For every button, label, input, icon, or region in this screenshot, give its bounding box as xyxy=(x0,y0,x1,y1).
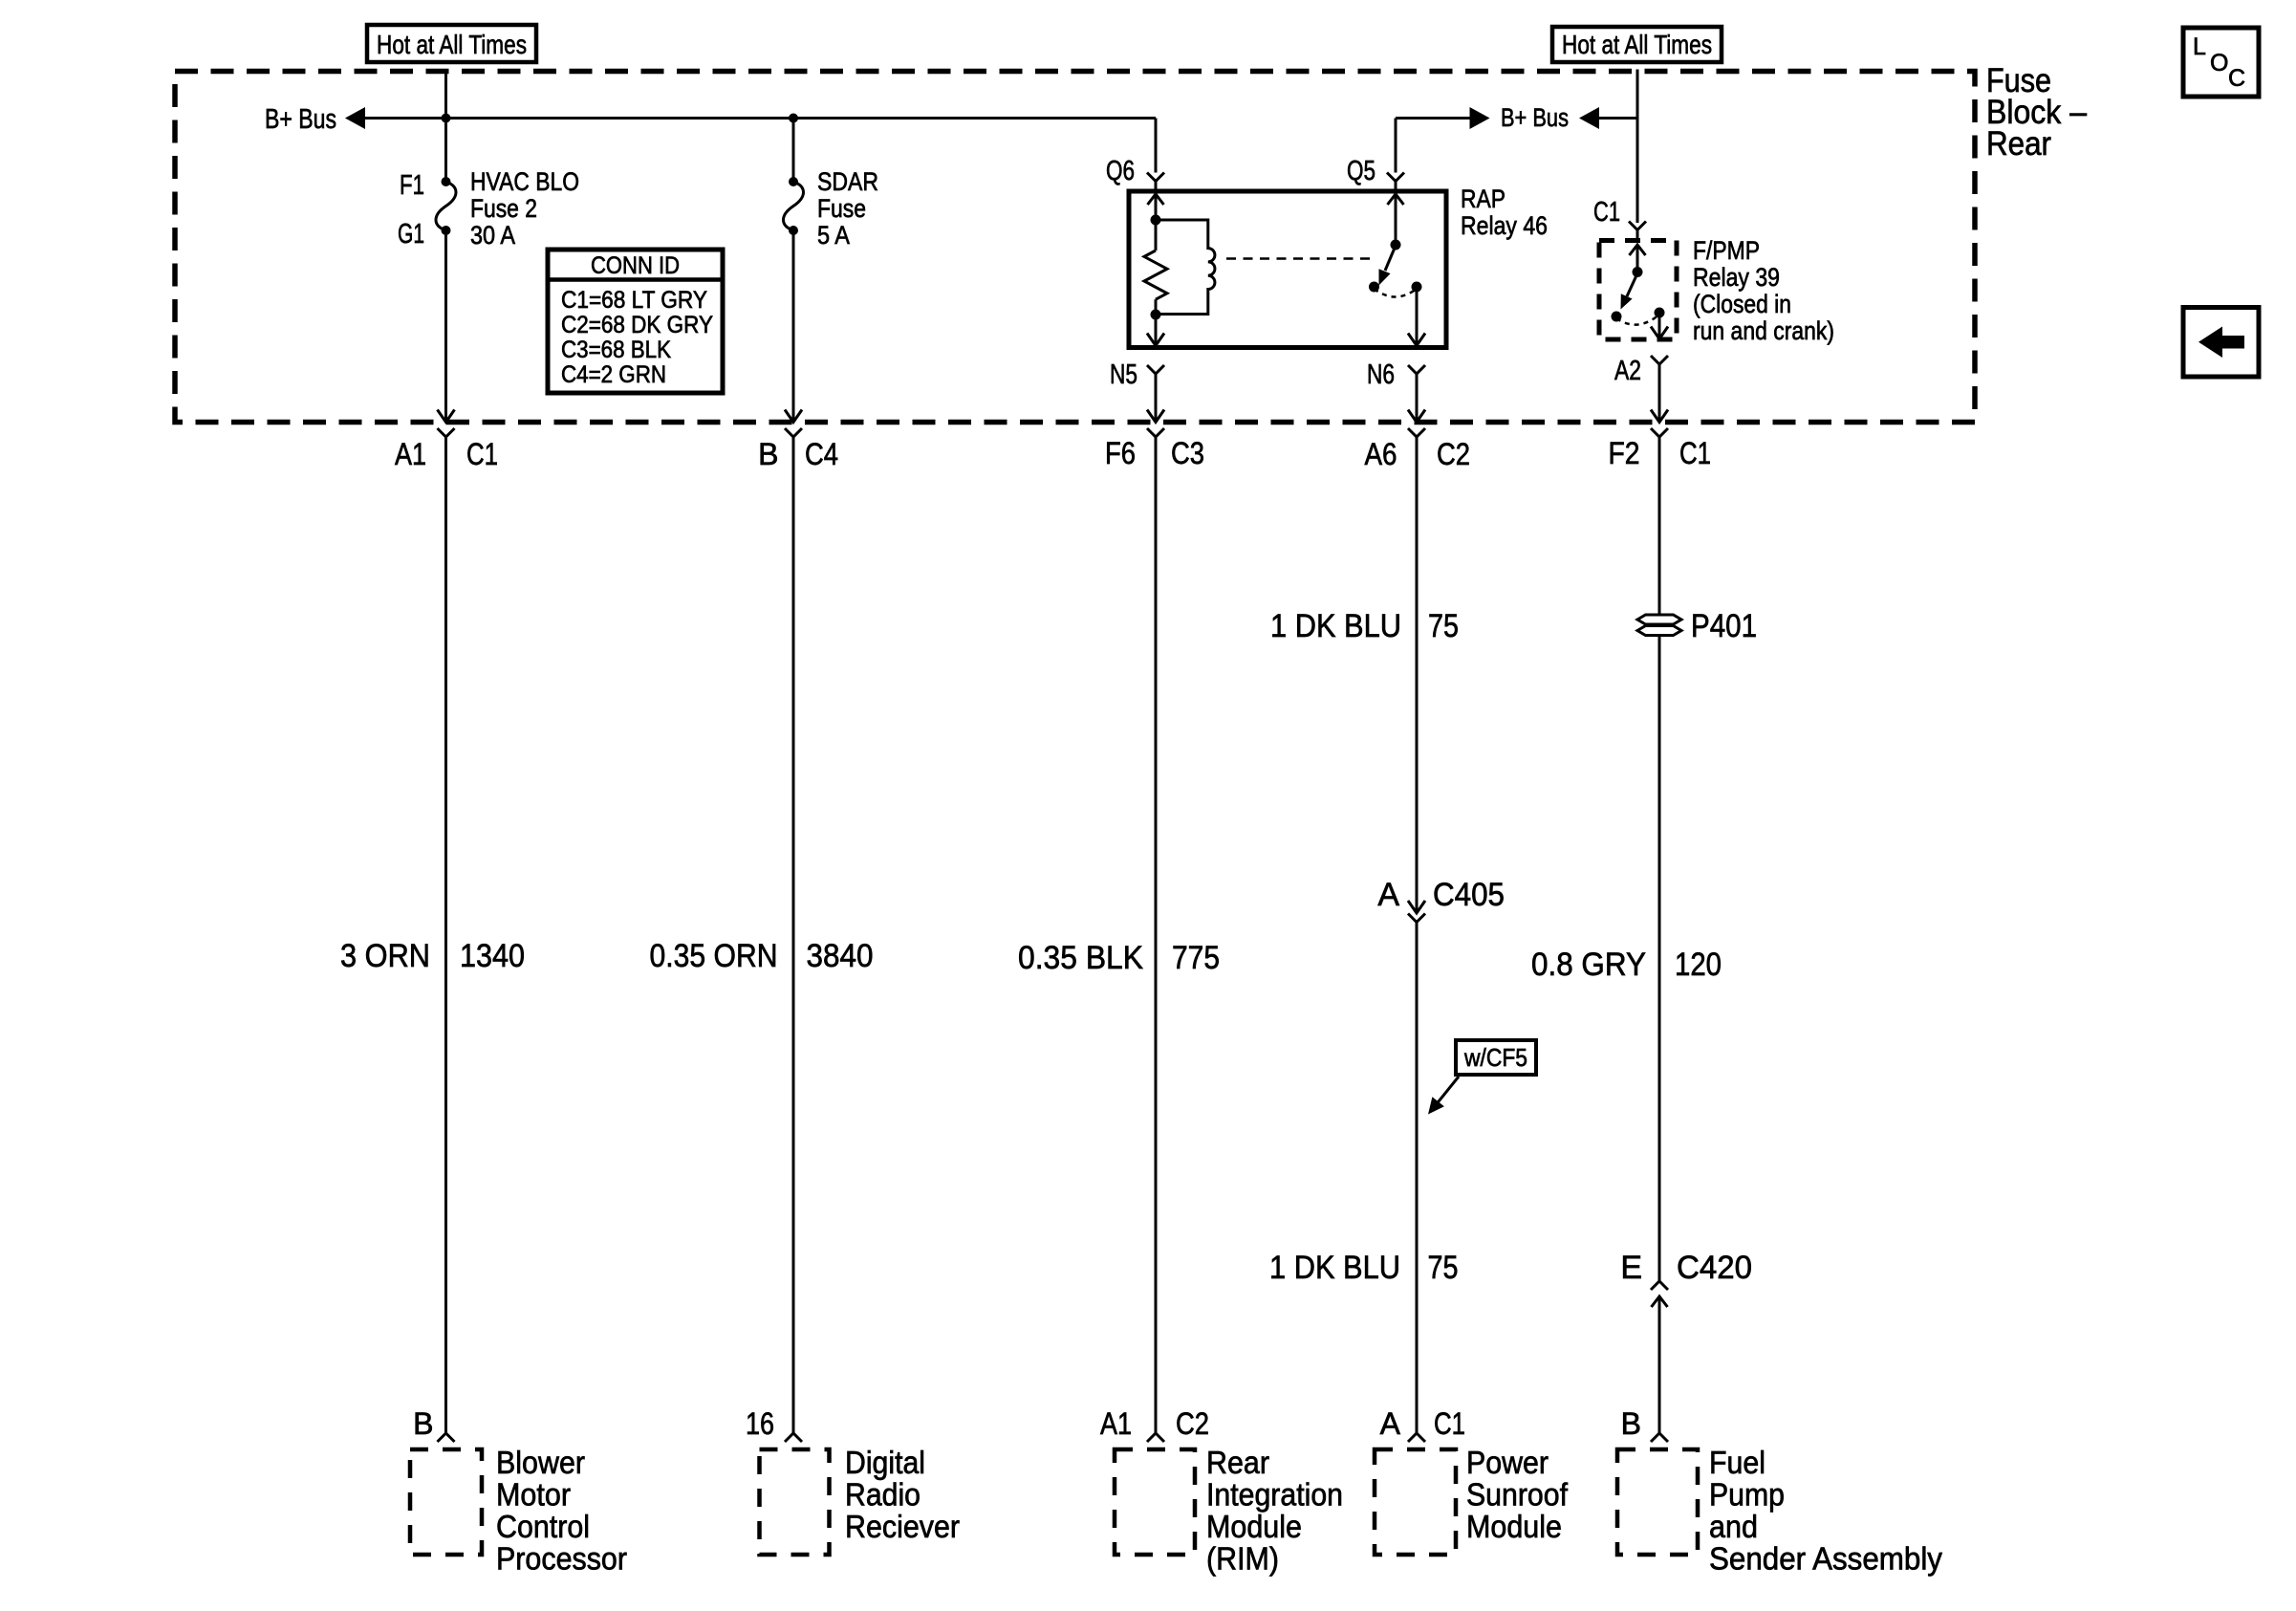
svg-text:Q6: Q6 xyxy=(1106,156,1135,186)
svg-text:Sender Assembly: Sender Assembly xyxy=(1709,1541,1942,1577)
svg-text:Radio: Radio xyxy=(845,1477,921,1513)
svg-text:Processor: Processor xyxy=(496,1541,627,1577)
svg-text:Rear: Rear xyxy=(1206,1445,1269,1480)
svg-text:C3=68 BLK: C3=68 BLK xyxy=(561,337,671,363)
svg-text:Pump: Pump xyxy=(1709,1477,1785,1513)
svg-text:B: B xyxy=(758,437,778,471)
svg-text:3 ORN: 3 ORN xyxy=(340,938,430,974)
svg-text:B: B xyxy=(1621,1406,1641,1441)
svg-text:C2=68 DK GRY: C2=68 DK GRY xyxy=(561,312,713,338)
svg-text:0.35 BLK: 0.35 BLK xyxy=(1018,940,1143,976)
svg-text:A1: A1 xyxy=(395,437,426,471)
svg-text:C4: C4 xyxy=(805,437,838,471)
svg-text:E: E xyxy=(1620,1250,1642,1286)
svg-text:run and crank): run and crank) xyxy=(1693,316,1834,345)
svg-text:C1=68 LT GRY: C1=68 LT GRY xyxy=(561,287,707,314)
svg-text:Fuel: Fuel xyxy=(1709,1445,1765,1480)
svg-text:Fuse: Fuse xyxy=(817,194,866,223)
svg-text:F1: F1 xyxy=(400,170,424,201)
svg-text:1 DK BLU: 1 DK BLU xyxy=(1270,608,1401,644)
svg-text:F6: F6 xyxy=(1105,436,1136,470)
svg-text:A2: A2 xyxy=(1614,356,1641,386)
svg-text:Module: Module xyxy=(1206,1509,1302,1544)
svg-text:B+ Bus: B+ Bus xyxy=(1501,103,1569,132)
svg-text:SDAR: SDAR xyxy=(817,167,878,196)
svg-text:Digital: Digital xyxy=(845,1445,925,1480)
svg-text:(RIM): (RIM) xyxy=(1206,1541,1279,1577)
svg-text:Hot at All Times: Hot at All Times xyxy=(1562,30,1712,59)
svg-text:F2: F2 xyxy=(1609,436,1640,470)
svg-text:N6: N6 xyxy=(1367,359,1395,390)
svg-text:3840: 3840 xyxy=(807,938,874,974)
svg-text:30 A: 30 A xyxy=(470,221,515,250)
svg-text:775: 775 xyxy=(1172,940,1220,976)
svg-text:N5: N5 xyxy=(1110,359,1137,390)
svg-text:Hot at All Times: Hot at All Times xyxy=(377,30,527,59)
svg-text:B+ Bus: B+ Bus xyxy=(265,104,336,135)
svg-text:RAP: RAP xyxy=(1461,185,1505,213)
svg-text:Sunroof: Sunroof xyxy=(1466,1477,1569,1513)
svg-text:120: 120 xyxy=(1675,947,1722,983)
svg-text:C1: C1 xyxy=(1434,1406,1465,1441)
svg-text:C405: C405 xyxy=(1433,877,1505,913)
svg-text:G1: G1 xyxy=(398,219,424,250)
svg-text:0.8 GRY: 0.8 GRY xyxy=(1531,947,1646,983)
svg-text:75: 75 xyxy=(1428,608,1459,644)
svg-text:C1: C1 xyxy=(1593,197,1620,228)
svg-text:Fuse 2: Fuse 2 xyxy=(470,194,537,223)
svg-text:C1: C1 xyxy=(1679,436,1711,470)
svg-text:Integration: Integration xyxy=(1206,1477,1343,1513)
svg-text:Reciever: Reciever xyxy=(845,1509,960,1544)
svg-text:C: C xyxy=(2228,65,2245,92)
svg-text:L: L xyxy=(2193,33,2206,60)
svg-text:75: 75 xyxy=(1428,1250,1459,1286)
svg-text:w/CF5: w/CF5 xyxy=(1463,1043,1527,1072)
svg-text:A: A xyxy=(1377,877,1399,913)
svg-text:5 A: 5 A xyxy=(817,221,850,250)
svg-text:C2: C2 xyxy=(1437,437,1470,471)
svg-text:and: and xyxy=(1709,1509,1758,1544)
svg-text:O: O xyxy=(2210,50,2228,76)
svg-text:16: 16 xyxy=(746,1406,774,1441)
svg-text:1 DK BLU: 1 DK BLU xyxy=(1269,1250,1400,1286)
svg-text:HVAC BLO: HVAC BLO xyxy=(470,167,579,196)
svg-text:C2: C2 xyxy=(1176,1406,1209,1441)
svg-text:Power: Power xyxy=(1466,1445,1549,1480)
svg-text:Relay 46: Relay 46 xyxy=(1461,211,1548,240)
svg-text:C1: C1 xyxy=(466,437,498,471)
svg-text:Relay 39: Relay 39 xyxy=(1693,263,1780,292)
svg-text:CONN ID: CONN ID xyxy=(591,252,680,279)
svg-text:A: A xyxy=(1380,1406,1401,1441)
svg-text:Module: Module xyxy=(1466,1509,1562,1544)
svg-text:0.35 ORN: 0.35 ORN xyxy=(650,938,778,974)
svg-text:Q5: Q5 xyxy=(1347,156,1375,186)
svg-text:P401: P401 xyxy=(1691,608,1757,644)
svg-text:C3: C3 xyxy=(1171,436,1204,470)
svg-text:1340: 1340 xyxy=(460,938,525,974)
svg-text:B: B xyxy=(413,1406,433,1441)
svg-text:Rear: Rear xyxy=(1986,125,2051,163)
svg-text:C420: C420 xyxy=(1677,1250,1752,1286)
svg-text:C4=2 GRN: C4=2 GRN xyxy=(561,361,666,388)
svg-text:F/PMP: F/PMP xyxy=(1693,236,1760,265)
svg-text:Control: Control xyxy=(496,1509,590,1544)
svg-text:A1: A1 xyxy=(1100,1406,1132,1441)
svg-text:(Closed in: (Closed in xyxy=(1693,290,1791,318)
svg-text:Blower: Blower xyxy=(496,1445,585,1480)
svg-text:Motor: Motor xyxy=(496,1477,571,1513)
svg-text:A6: A6 xyxy=(1365,437,1397,471)
